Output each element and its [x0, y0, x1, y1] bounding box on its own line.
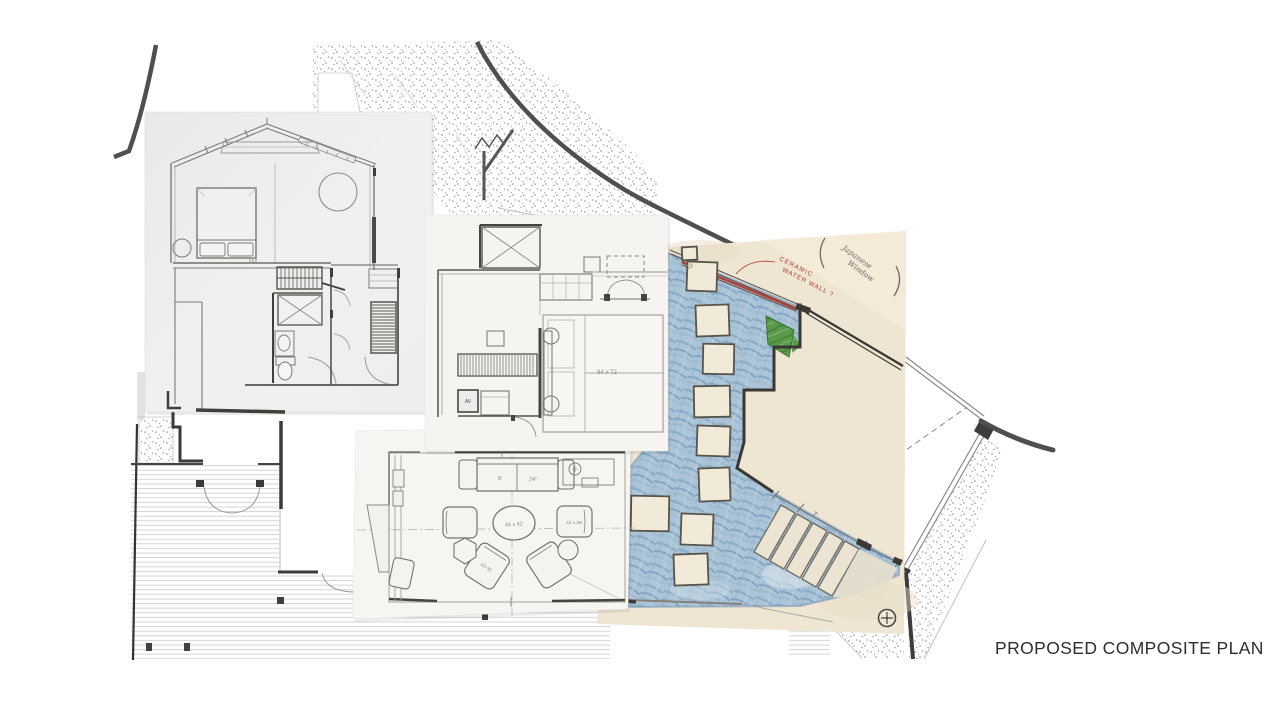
av-label: AV — [465, 399, 472, 405]
guest-bedroom-sketch-scan: AV 84 x 72 — [0, 0, 1280, 720]
bed-dim-label: 84 x 72 — [597, 370, 617, 376]
page-title: PROPOSED COMPOSITE PLAN — [995, 638, 1264, 659]
nightstand — [543, 396, 559, 412]
composite-plan-page: 7' CERAMIC WATER WALL ? Japanese Window … — [0, 0, 1280, 720]
nightstand — [543, 328, 559, 344]
